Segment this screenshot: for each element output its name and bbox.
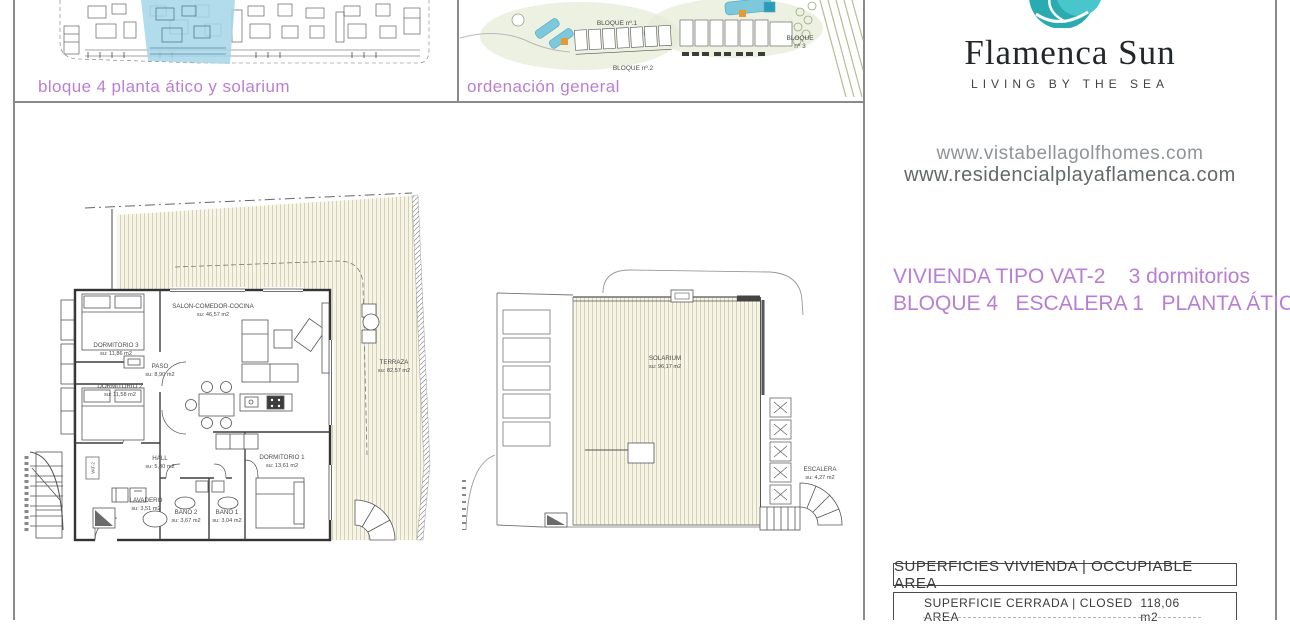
room-label-terraza: TERRAZA [380,359,410,366]
room-area-lavadero: su: 3,51 m2 [131,506,160,512]
floorplan-apartment: VAT-2 SALON-COMEDOR-COCINA su: 46,57 m2 … [27,193,431,543]
areas-row-dotted-separator [923,617,1201,618]
room-label-paso: PASO [152,363,169,370]
room-label-lavadero: LAVADERO [130,497,163,504]
block4-highlight [141,0,235,64]
area-row-label: SUPERFICIE CERRADA | CLOSED AREA [924,596,1140,624]
site-label-bloque1: BLOQUE nº.1 [597,20,638,27]
room-area-dorm1: su: 13,61 m2 [266,463,298,469]
unit-location: BLOQUE 4 ESCALERA 1 PLANTA ÁTICO [893,292,1250,316]
room-label-escalera: ESCALERA [803,466,837,473]
website-link-1[interactable]: www.vistabellagolfhomes.com [873,143,1267,165]
room-label-hall: HALL [152,455,168,462]
room-area-salon: su: 46,57 m2 [197,312,229,318]
room-area-bano1: su: 3,04 m2 [212,518,241,524]
unit-info-line1: VIVIENDA TIPO VAT-2 3 dormitorios [893,265,1250,289]
floorplan-solarium: SOLARIUM su: 96,17 m2 ESCALERA su: 4,27 … [464,270,842,530]
site-label-bloque2: BLOQUE nº.2 [613,65,654,72]
room-area-dorm3: su: 11,86 m2 [100,351,132,357]
entrance-tag-vat2: VAT-2 [91,462,96,474]
panel1-caption: bloque 4 planta ático y solarium [38,77,290,97]
site-plan-block4 [60,0,429,64]
room-label-bano2: BAÑO 2 [175,509,198,516]
room-label-dorm3: DORMITORIO 3 [93,342,139,349]
areas-table-row: SUPERFICIE CERRADA | CLOSED AREA 118,06 … [893,592,1237,620]
room-area-dorm2: su: 11,58 m2 [104,392,136,398]
room-area-hall: su: 5,80 m2 [145,464,174,470]
site-label-bloque3-line2: nº 3 [794,43,806,50]
room-label-bano1: BAÑO 1 [216,509,239,516]
room-area-terraza: su: 82,57 m2 [378,368,410,374]
room-area-solarium: su: 96,17 m2 [649,364,681,370]
unit-bedrooms: 3 dormitorios [1129,265,1250,289]
room-label-salon: SALON-COMEDOR-COCINA [172,303,254,310]
room-label-dorm1: DORMITORIO 1 [259,454,305,461]
wave-swirl-icon [1029,0,1102,29]
brand-tagline: LIVING BY THE SEA [873,77,1267,91]
room-label-solarium: SOLARIUM [649,355,681,362]
room-area-escalera: su: 4,27 m2 [805,475,834,481]
room-area-bano2: su: 3,67 m2 [171,518,200,524]
website-link-2[interactable]: www.residencialplayaflamenca.com [873,164,1267,187]
area-row-value: 118,06 m2 [1140,596,1194,624]
unit-type: VIVIENDA TIPO VAT-2 [893,265,1105,289]
panel2-caption: ordenación general [467,77,620,97]
areas-table-header: SUPERFICIES VIVIENDA | OCCUPIABLE AREA [893,563,1237,586]
site-label-bloque3-line1: BLOQUE [786,35,814,42]
room-area-paso: su: 8,90 m2 [145,372,174,378]
room-label-dorm2: DORMITORIO 2 [97,383,143,390]
brand-name: Flamenca Sun [873,33,1267,73]
